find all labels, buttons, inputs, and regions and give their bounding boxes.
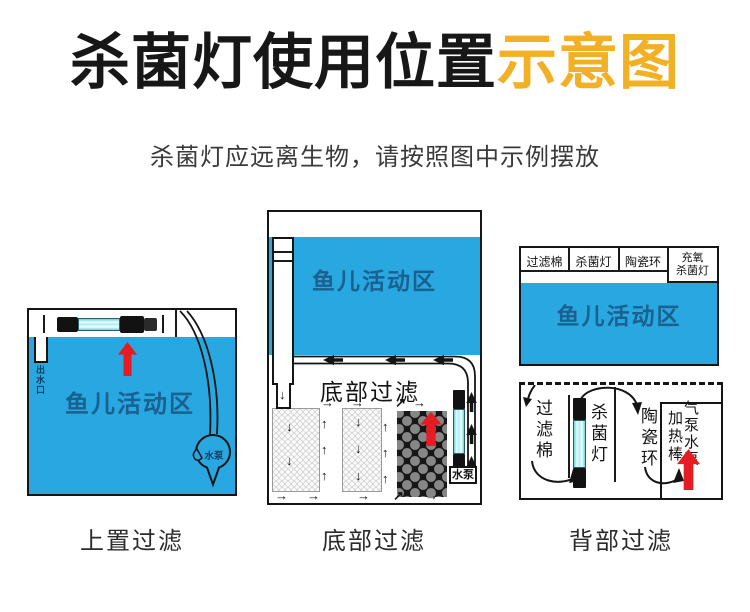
down-arrow-icon: ↓ [355,469,362,482]
title-main: 杀菌灯使用位置 [70,29,497,96]
header-text: 杀菌灯 [668,265,717,278]
uv-lamp-tube [573,420,586,468]
top-filter-tank: 出水口 鱼儿活动区 水泵 [27,308,237,496]
header-text: 充氧 [668,252,717,265]
uv-lamp-top-cap [573,398,586,420]
title-highlight: 示意图 [497,29,680,96]
right-arrow-icon: → [413,396,426,409]
up-arrow-icon: ↑ [321,443,328,456]
uv-lamp-vertical [453,390,465,468]
header-text: 陶瓷环 [625,255,661,269]
up-right-arrow-icon: ↗ [393,489,404,502]
pump-label-box: 水泵 [449,466,477,484]
back-filter-tank: 过滤棉 杀菌灯 陶瓷环 充氧 杀菌灯 鱼儿活动区 [519,246,719,366]
overflow-grate-line [274,251,292,253]
pump-label: 水泵 [199,448,229,462]
up-arrow-icon: ↑ [382,472,389,485]
compartment-header-filter-cotton: 过滤棉 [521,253,568,270]
uv-lamp-bottom-cap [573,468,586,488]
uv-lamp-top-cap [453,390,465,409]
header-text: 杀菌灯 [575,255,611,269]
down-arrow-icon: ↓ [279,388,286,401]
back-filter-side-box: 过滤棉 杀菌灯 陶瓷环 加热棒 气泵水泵 [519,382,723,500]
compartment-header-oxygen-uv-lamp: 充氧 杀菌灯 [668,252,717,278]
bottom-filter-tank: 鱼儿活动区 ↓ 底部过滤 ↓ ↓ ↑ ↑ ↑ [267,210,482,505]
up-arrow-icon: ↑ [382,420,389,433]
uv-lamp-vertical [573,398,586,488]
caption-top-filter: 上置过滤 [72,521,192,556]
up-arrow-icon: ↑ [321,417,328,430]
down-arrow-icon: ↓ [286,454,293,467]
up-arrow-icon: ↑ [382,446,389,459]
overflow-pipe [272,237,294,385]
caption-bottom-filter: 底部过滤 [314,521,434,556]
right-arrow-icon: → [307,489,320,502]
header-bottom-line [521,270,669,272]
fish-zone-label: 鱼儿活动区 [521,305,717,328]
compartment-header-uv-lamp: 杀菌灯 [569,253,618,270]
right-arrow-icon: → [425,489,438,502]
sump-plumbing-graphic [269,212,480,503]
up-arrow-icon: ↑ [321,469,328,482]
uv-lamp-tube [453,409,465,454]
page-title: 杀菌灯使用位置示意图 [0,30,750,96]
right-arrow-icon: → [321,396,334,409]
right-arrow-icon: → [275,489,288,502]
header-text: 过滤棉 [526,255,562,269]
down-arrow-icon: ↓ [355,415,362,428]
caption-back-filter: 背部过滤 [561,521,681,556]
compartment-header-ceramic-rings: 陶瓷环 [619,253,667,270]
infographic-page: 杀菌灯使用位置示意图 杀菌灯应远离生物，请按照图中示例摆放 出水口 鱼儿活动区 … [0,0,750,612]
page-subtitle: 杀菌灯应远离生物，请按照图中示例摆放 [0,137,750,172]
overflow-grate-line [274,260,292,262]
down-arrow-icon: ↓ [355,442,362,455]
down-arrow-icon: ↓ [286,420,293,433]
right-arrow-icon: → [351,396,364,409]
right-arrow-icon: → [357,489,370,502]
pipe-and-pump-graphic [29,310,235,494]
up-right-arrow-icon: ↗ [395,396,406,409]
